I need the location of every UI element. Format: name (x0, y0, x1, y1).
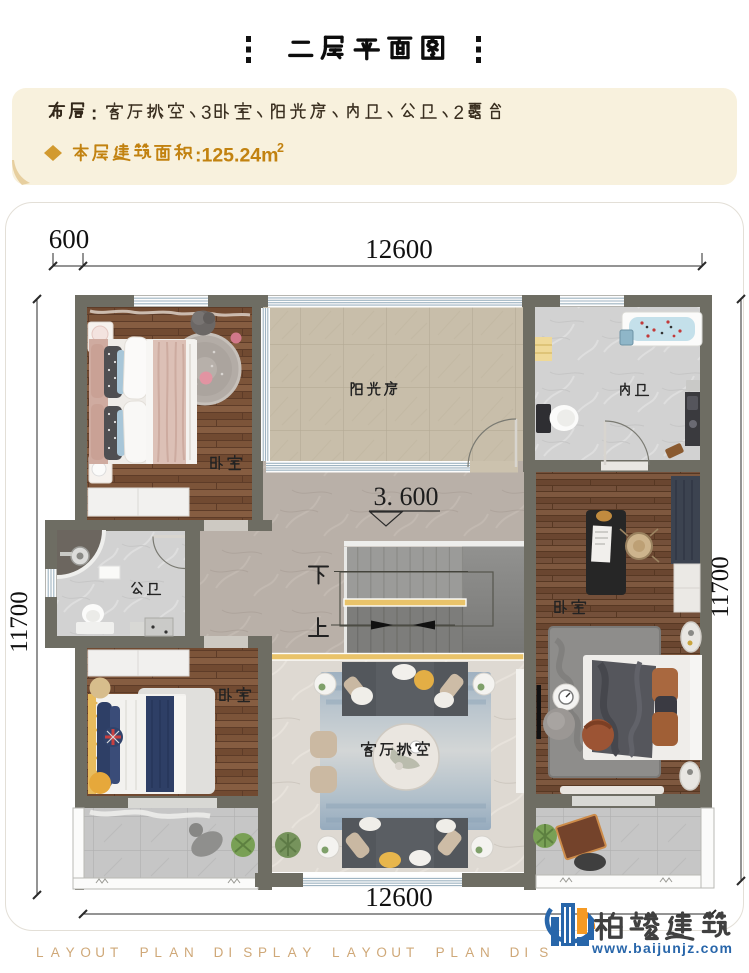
svg-text:D: D (510, 945, 520, 960)
svg-text:U: U (391, 945, 401, 960)
svg-text:I: I (524, 945, 528, 960)
svg-text:L: L (273, 945, 281, 960)
svg-text:N: N (184, 945, 194, 960)
svg-text:www.baijunjz.com: www.baijunjz.com (591, 940, 732, 956)
svg-text:11700: 11700 (707, 556, 734, 618)
svg-text:N: N (480, 945, 490, 960)
svg-text:11700: 11700 (6, 591, 33, 653)
svg-text:2: 2 (277, 141, 284, 155)
svg-text:12600: 12600 (365, 882, 433, 912)
svg-text:2: 2 (454, 103, 465, 124)
svg-text:T: T (406, 945, 414, 960)
svg-text:A: A (169, 945, 178, 960)
svg-text:Y: Y (66, 945, 75, 960)
svg-text:A: A (465, 945, 474, 960)
svg-text:S: S (243, 945, 252, 960)
svg-text:A: A (51, 945, 60, 960)
svg-text:L: L (332, 945, 340, 960)
svg-text:L: L (450, 945, 458, 960)
svg-text:O: O (80, 945, 91, 960)
svg-text:3. 600: 3. 600 (374, 482, 439, 511)
svg-text:I: I (228, 945, 232, 960)
svg-text:Y: Y (362, 945, 371, 960)
svg-text:D: D (214, 945, 224, 960)
svg-text:A: A (347, 945, 356, 960)
svg-text::125.24m: :125.24m (195, 145, 278, 167)
svg-text:L: L (36, 945, 44, 960)
svg-text::: : (91, 104, 97, 125)
svg-text:A: A (288, 945, 297, 960)
svg-text:P: P (258, 945, 267, 960)
svg-text:P: P (140, 945, 149, 960)
svg-text:L: L (154, 945, 162, 960)
svg-text:O: O (376, 945, 387, 960)
svg-text:12600: 12600 (365, 234, 433, 264)
svg-text:P: P (436, 945, 445, 960)
svg-text:Y: Y (302, 945, 311, 960)
svg-text:U: U (95, 945, 105, 960)
svg-text:3: 3 (201, 103, 212, 124)
svg-text:600: 600 (49, 224, 90, 254)
svg-text:T: T (110, 945, 118, 960)
svg-text:S: S (539, 945, 548, 960)
